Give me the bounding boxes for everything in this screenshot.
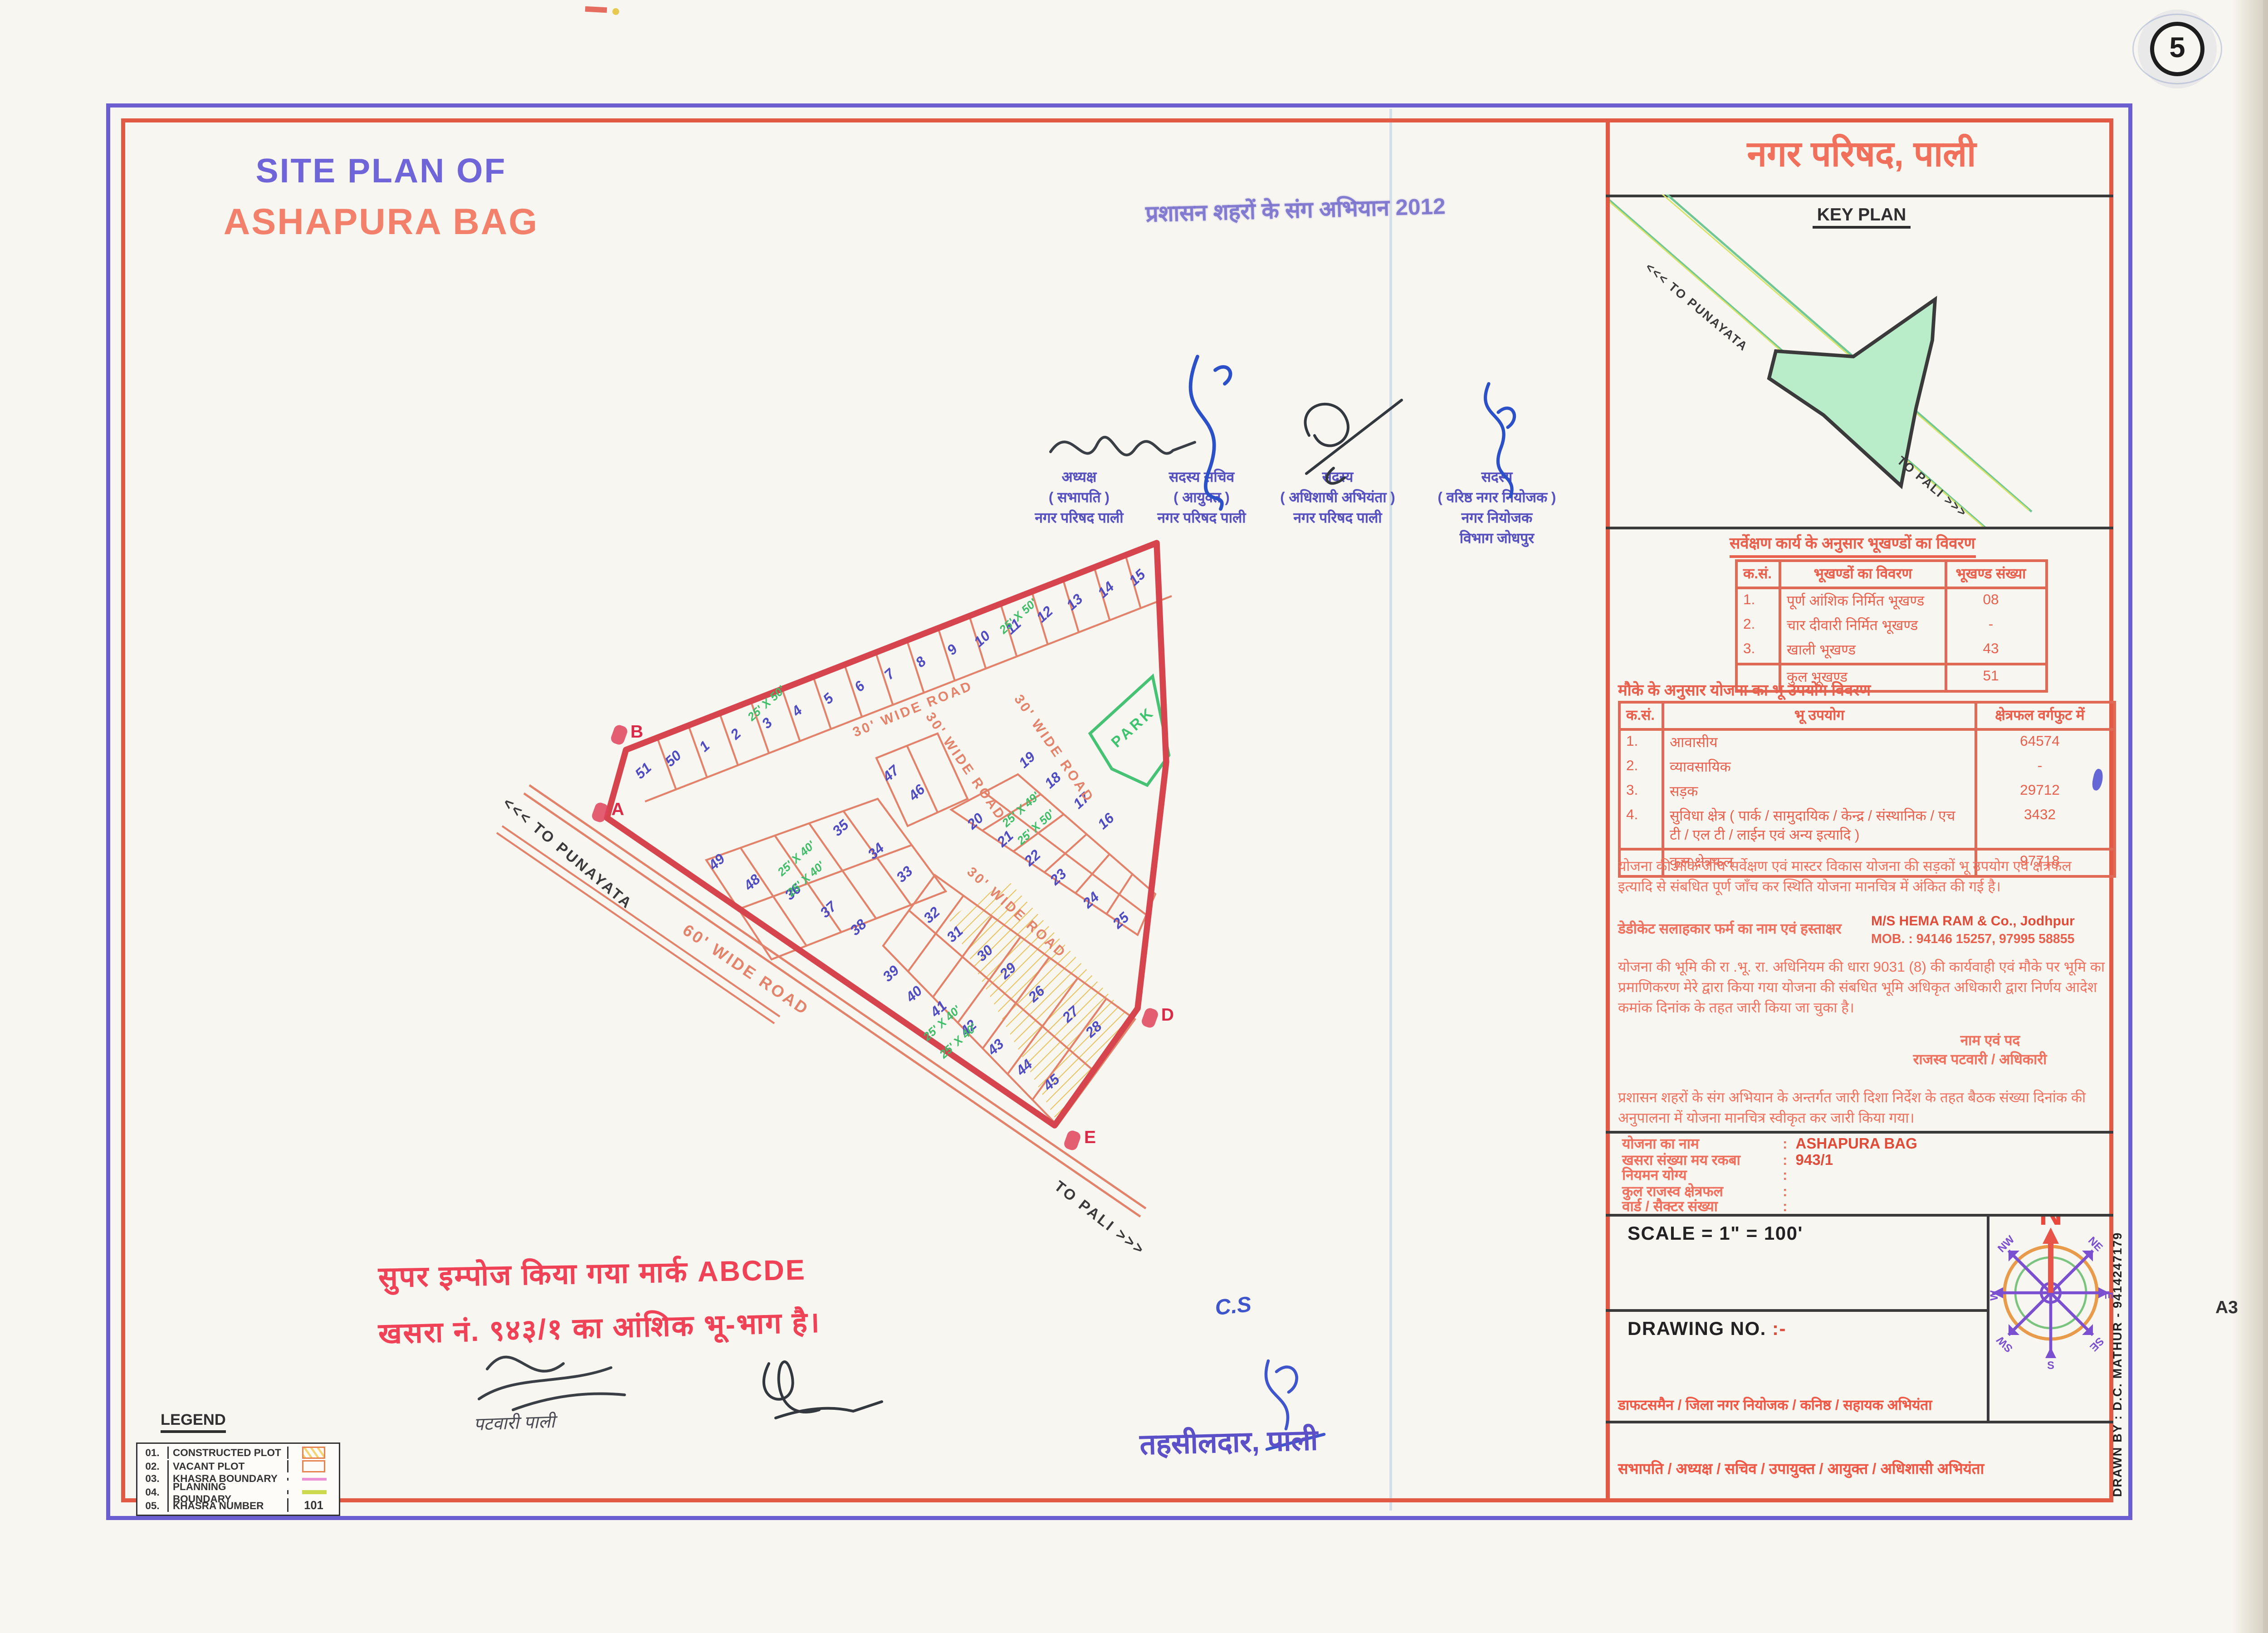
scale-label: SCALE = 1" = 100' bbox=[1628, 1222, 1803, 1244]
plan-info-label: खसरा संख्या मय रकबा bbox=[1622, 1154, 1783, 1168]
tehsildar-stamp: तहसीलदार, पाली bbox=[1085, 1420, 1372, 1465]
landuse-table-title: मौके के अनुसार योजना का भू उपयोग विवरण bbox=[1618, 680, 1871, 701]
compass-s: S bbox=[2047, 1359, 2054, 1372]
table-cell: 3432 bbox=[1977, 804, 2102, 848]
plot-number-23: 23 bbox=[1046, 865, 1070, 888]
keyplan-road-se: TO PALI >>> bbox=[1895, 454, 1970, 520]
corner-letter-D: D bbox=[1161, 1005, 1174, 1025]
consultant-name: M/S HEMA RAM & Co., Jodhpur bbox=[1871, 914, 2116, 929]
table-cell: व्यावसायिक bbox=[1664, 755, 1977, 780]
table-row: 3.सड़क29712 bbox=[1621, 780, 2113, 804]
compass-se: SE bbox=[2087, 1335, 2106, 1354]
compass-sw: SW bbox=[1994, 1334, 2015, 1355]
legend-row: 02. VACANT PLOT bbox=[137, 1460, 339, 1472]
legend-no: 03. bbox=[137, 1473, 167, 1485]
keyplan-road-nw: <<< TO PUNAYATA bbox=[1643, 260, 1751, 354]
table-cell: 3. bbox=[1621, 780, 1664, 804]
landuse-table: क.सं.भू उपयोगक्षेत्रफल वर्गफुट में1.आवास… bbox=[1618, 701, 2116, 878]
legend-label: KHASRA NUMBER bbox=[167, 1499, 287, 1511]
plan-info-label: योजना का नाम bbox=[1622, 1138, 1783, 1152]
table-cell: 2. bbox=[1621, 755, 1664, 780]
officials-line1: डाफटसमैन / जिला नगर नियोजक / कनिष्ठ / सह… bbox=[1618, 1396, 2067, 1415]
plan-info-row: नियमन योग्य : bbox=[1622, 1169, 2112, 1183]
corner-letter-A: A bbox=[611, 800, 624, 819]
table-cell: भूखण्डों का विवरण bbox=[1781, 562, 1947, 587]
drawing-no-label: DRAWING NO. :- bbox=[1628, 1317, 1786, 1339]
legend-table: 01. CONSTRUCTED PLOT 02. VACANT PLOT 03.… bbox=[136, 1442, 340, 1516]
compass-rose: NNWNEWESWSES bbox=[1989, 1217, 2115, 1418]
name-post-label: नाम एवं पद bbox=[1878, 1032, 2102, 1051]
table-cell: 43 bbox=[1947, 638, 2034, 663]
plan-info-row: कुल राजस्व क्षेत्रफल : bbox=[1622, 1185, 2112, 1199]
table-row: 2.व्यावसायिक- bbox=[1621, 755, 2113, 780]
drawing-no-punct: :- bbox=[1772, 1317, 1786, 1339]
plan-info-value: ASHAPURA BAG bbox=[1796, 1138, 1917, 1152]
table-cell: भूखण्ड संख्या bbox=[1947, 562, 2034, 587]
plot-number-22: 22 bbox=[1021, 846, 1044, 869]
table-cell: सुविधा क्षेत्र ( पार्क / सामुदायिक / केन… bbox=[1664, 804, 1977, 848]
signature-patwari bbox=[479, 1357, 625, 1410]
table-cell: खाली भूखण्ड bbox=[1781, 638, 1947, 663]
table-cell: भू उपयोग bbox=[1664, 704, 1977, 728]
plot-number-18: 18 bbox=[1041, 768, 1064, 792]
table-cell: क्षेत्रफल वर्गफुट में bbox=[1977, 704, 2102, 728]
vacant-plot-swatch bbox=[302, 1460, 325, 1472]
legend-row: 01. CONSTRUCTED PLOT bbox=[137, 1447, 339, 1459]
legend-no: 05. bbox=[137, 1499, 167, 1511]
table-cell: पूर्ण आंशिक निर्मित भूखण्ड bbox=[1781, 589, 1947, 614]
plot-number-51: 51 bbox=[632, 759, 655, 782]
table-cell: 08 bbox=[1947, 589, 2034, 614]
table-cell: 64574 bbox=[1977, 731, 2102, 755]
khasra-number-sample: 101 bbox=[304, 1499, 323, 1512]
consultant-mobile: MOB. : 94146 15257, 97995 58855 bbox=[1871, 932, 2116, 947]
table-row: 1.आवासीय64574 bbox=[1621, 731, 2113, 755]
plan-info-colon: : bbox=[1783, 1200, 1788, 1215]
plot-number-34: 34 bbox=[865, 840, 887, 862]
plot-number-43: 43 bbox=[984, 1035, 1007, 1058]
table-cell: - bbox=[1977, 755, 2102, 780]
plan-info-colon: : bbox=[1783, 1185, 1788, 1199]
plot-number-48: 48 bbox=[740, 870, 763, 894]
plot-number-33: 33 bbox=[893, 862, 916, 885]
table-cell: 1. bbox=[1738, 589, 1781, 614]
drawing-no-text: DRAWING NO. bbox=[1628, 1317, 1766, 1339]
red-note-line1: सुपर इम्पोज किया गया मार्क ABCDE bbox=[378, 1251, 806, 1296]
survey-table-title: सर्वेक्षण कार्य के अनुसार भूखण्डों का वि… bbox=[1730, 533, 1975, 558]
officials-line2: सभापति / अध्यक्ष / सचिव / उपायुक्त / आयु… bbox=[1618, 1459, 2081, 1479]
plan-info-label: नियमन योग्य bbox=[1622, 1169, 1783, 1183]
table-cell: 3. bbox=[1738, 638, 1781, 663]
table-row: 1.पूर्ण आंशिक निर्मित भूखण्ड08 bbox=[1738, 589, 2045, 614]
municipality-header: नगर परिषद, पाली bbox=[1610, 128, 2113, 177]
drawn-by-vertical: DRAWN BY : D.C. MATHUR - 9414247179 bbox=[2111, 1089, 2124, 1497]
table-cell: 2. bbox=[1738, 614, 1781, 638]
table-cell: 1. bbox=[1621, 731, 1664, 755]
plot-number-47: 47 bbox=[879, 762, 903, 785]
note-land-act: योजना की भूमि की रा .भू. रा. अधिनियम की … bbox=[1618, 958, 2108, 1020]
table-row: 4.सुविधा क्षेत्र ( पार्क / सामुदायिक / क… bbox=[1621, 804, 2113, 848]
plan-info-colon: : bbox=[1783, 1154, 1788, 1168]
road-label: 30' WIDE ROAD bbox=[850, 678, 975, 740]
legend-row: 05. KHASRA NUMBER 101 bbox=[137, 1499, 339, 1511]
table-row: 2.चार दीवारी निर्मित भूखण्ड- bbox=[1738, 614, 2045, 638]
plot-number-39: 39 bbox=[880, 962, 902, 985]
compass-w: W bbox=[1989, 1290, 2000, 1301]
table-cell: चार दीवारी निर्मित भूखण्ड bbox=[1781, 614, 1947, 638]
note-approval: प्रशासन शहरों के संग अभियान के अन्तर्गत … bbox=[1618, 1089, 2108, 1130]
legend-no: 01. bbox=[137, 1447, 167, 1459]
compass-box-divider bbox=[1987, 1214, 1989, 1421]
plot-number-4: 4 bbox=[788, 702, 805, 720]
signature-sadasya-sachiv bbox=[1191, 357, 1231, 509]
khasra-boundary-swatch bbox=[302, 1478, 326, 1481]
planning-boundary-swatch bbox=[302, 1490, 326, 1494]
note-survey: योजना की मौके जाँच सर्वेक्षण एवं मास्टर … bbox=[1618, 857, 2108, 899]
key-plan-site-shape bbox=[1769, 299, 1935, 486]
table-cell: 51 bbox=[1947, 665, 2034, 690]
signature-sadasya-2 bbox=[1486, 384, 1515, 497]
compass-n: N bbox=[2039, 1217, 2063, 1232]
rule-2 bbox=[1606, 527, 2113, 529]
table-row: 3.खाली भूखण्ड43 bbox=[1738, 638, 2045, 663]
cs-annotation: C.S bbox=[1214, 1294, 1252, 1322]
table-cell: क.सं. bbox=[1621, 704, 1664, 728]
corner-letter-E: E bbox=[1084, 1128, 1096, 1147]
legend-no: 04. bbox=[137, 1486, 167, 1498]
plan-info-label: कुल राजस्व क्षेत्रफल bbox=[1622, 1185, 1783, 1199]
plan-info-row: योजना का नाम : ASHAPURA BAG bbox=[1622, 1138, 2112, 1152]
plot-number-16: 16 bbox=[1095, 809, 1117, 832]
legend-row: 04. PLANNING BOUNDARY bbox=[137, 1486, 339, 1498]
legend-label: VACANT PLOT bbox=[167, 1460, 287, 1472]
scanned-site-plan-sheet: 5 A3 SITE PLAN OF ASHAPURA BAG प्रशासन श… bbox=[0, 0, 2268, 1633]
table-header-row: क.सं.भूखण्डों का विवरणभूखण्ड संख्या bbox=[1738, 562, 2045, 589]
table-cell: 29712 bbox=[1977, 780, 2102, 804]
table-cell: - bbox=[1947, 614, 2034, 638]
plan-info-row: वार्ड / सैक्टर संख्या : bbox=[1622, 1200, 2112, 1215]
plan-info-block: योजना का नाम : ASHAPURA BAGखसरा संख्या म… bbox=[1622, 1138, 2112, 1216]
legend-label: CONSTRUCTED PLOT bbox=[167, 1447, 287, 1459]
plan-info-value: 943/1 bbox=[1796, 1154, 1833, 1168]
table-cell: 4. bbox=[1621, 804, 1664, 848]
table-header-row: क.सं.भू उपयोगक्षेत्रफल वर्गफुट में bbox=[1621, 704, 2113, 731]
consultant-label: डेडीकेट सलाहकार फर्म का नाम एवं हस्ताक्ष… bbox=[1618, 920, 1863, 941]
survey-table: क.सं.भूखण्डों का विवरणभूखण्ड संख्या1.पूर… bbox=[1735, 559, 2048, 693]
plan-info-row: खसरा संख्या मय रकबा : 943/1 bbox=[1622, 1154, 2112, 1168]
table-cell: क.सं. bbox=[1738, 562, 1781, 587]
legend-title: LEGEND bbox=[161, 1413, 226, 1433]
plan-info-label: वार्ड / सैक्टर संख्या bbox=[1622, 1200, 1783, 1215]
plot-number-7: 7 bbox=[881, 665, 898, 683]
plan-info-colon: : bbox=[1783, 1138, 1788, 1152]
table-cell: सड़क bbox=[1664, 780, 1977, 804]
table-cell: आवासीय bbox=[1664, 731, 1977, 755]
plot-number-19: 19 bbox=[1016, 748, 1038, 771]
plan-info-colon: : bbox=[1783, 1169, 1788, 1183]
plot-number-50: 50 bbox=[662, 747, 684, 770]
plot-number-38: 38 bbox=[847, 915, 870, 939]
corner-letter-B: B bbox=[631, 722, 643, 742]
signature-bottom-middle bbox=[764, 1362, 882, 1418]
signature-adhyaksh bbox=[1051, 437, 1195, 455]
rule-6 bbox=[1606, 1421, 2113, 1423]
rule-3 bbox=[1606, 1131, 2113, 1133]
legend-no: 02. bbox=[137, 1460, 167, 1472]
constructed-plot-swatch bbox=[302, 1447, 325, 1459]
plot-number-21: 21 bbox=[993, 827, 1017, 851]
key-plan-map: <<< TO PUNAYATATO PALI >>> bbox=[1610, 195, 2113, 527]
name-post-role: राजस्व पटवारी / अधिकारी bbox=[1851, 1051, 2109, 1070]
rule-4 bbox=[1606, 1214, 2113, 1216]
patwari-annotation: पटवारी पाली bbox=[473, 1408, 555, 1436]
rule-5 bbox=[1606, 1309, 1989, 1311]
signature-sadasya-1 bbox=[1305, 400, 1402, 484]
